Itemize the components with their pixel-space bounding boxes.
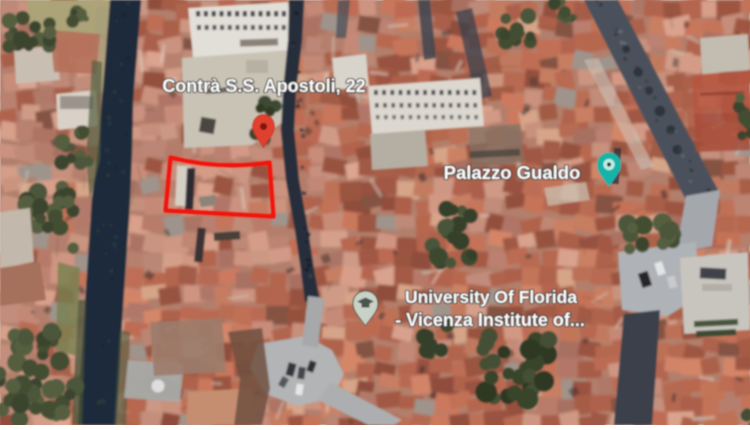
svg-text:Contrà S.S. Apostoli, 22: Contrà S.S. Apostoli, 22 [162,76,365,96]
svg-text:Palazzo Gualdo: Palazzo Gualdo [444,162,581,183]
svg-text:University Of Florida: University Of Florida [405,287,577,307]
svg-text:- Vicenza Institute of...: - Vicenza Institute of... [395,310,585,330]
